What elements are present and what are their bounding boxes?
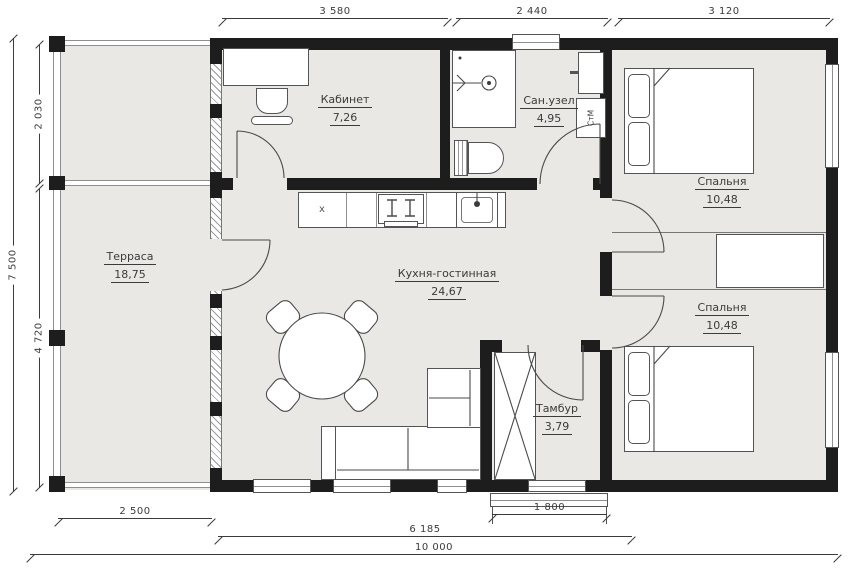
room-name: Терраса bbox=[104, 251, 157, 265]
wall-post bbox=[210, 38, 222, 64]
bathroom-door-opening bbox=[537, 178, 593, 190]
room-area: 4,95 bbox=[534, 113, 565, 127]
room-name: Кабинет bbox=[318, 94, 373, 108]
room-label-living: Кухня-гостинная 24,67 bbox=[397, 262, 497, 306]
room-label-bedroom2: Спальня 10,48 bbox=[677, 296, 767, 340]
room-name: Спальня bbox=[695, 302, 750, 316]
dimension-top-2: 2 440 bbox=[456, 6, 608, 22]
office-chair-back bbox=[251, 116, 293, 125]
kitchen-sink-basin bbox=[461, 197, 493, 223]
wall-post bbox=[210, 468, 222, 492]
dimension-bottom-total: 10 000 bbox=[30, 542, 838, 558]
bedroom1-door-opening bbox=[600, 198, 612, 252]
entrance-door bbox=[528, 480, 586, 492]
counter-divider bbox=[426, 193, 427, 227]
office-door-opening bbox=[233, 178, 287, 190]
floor-plan: СтМ x Терраса 18,75 Кабинет 7,26 Сан.узе… bbox=[0, 0, 862, 574]
dimension-value: 4 720 bbox=[34, 318, 45, 357]
dimension-value: 2 030 bbox=[34, 94, 45, 133]
dimension-value: 1 800 bbox=[492, 502, 607, 513]
room-area: 7,26 bbox=[330, 112, 361, 126]
window bbox=[253, 479, 311, 493]
office-desk bbox=[223, 48, 309, 86]
room-label-terrace: Терраса 18,75 bbox=[80, 245, 180, 289]
room-name: Кухня-гостинная bbox=[395, 268, 499, 282]
sofa-seat bbox=[335, 426, 481, 480]
window bbox=[512, 34, 560, 50]
toilet-tank bbox=[454, 140, 468, 176]
tambour-top-wall-left bbox=[480, 340, 502, 352]
wall-post bbox=[210, 294, 222, 308]
room-area: 24,67 bbox=[428, 286, 466, 300]
dimension-value: 10 000 bbox=[30, 542, 838, 553]
washbasin-faucet bbox=[570, 71, 579, 74]
terrace-bottom-edge bbox=[55, 482, 212, 488]
tambour-left-wall bbox=[480, 340, 492, 492]
wall-post bbox=[210, 172, 222, 198]
pillow bbox=[628, 74, 650, 118]
window bbox=[825, 64, 839, 168]
fridge-spot: x bbox=[300, 196, 344, 222]
window bbox=[825, 352, 839, 448]
toilet-bowl bbox=[468, 142, 504, 174]
room-area: 3,79 bbox=[542, 421, 573, 435]
room-label-tambour: Тамбур 3,79 bbox=[514, 397, 600, 441]
dimension-left-total: 7 500 bbox=[6, 38, 20, 492]
wall-post bbox=[210, 402, 222, 416]
room-label-office: Кабинет 7,26 bbox=[295, 88, 395, 132]
washbasin bbox=[578, 52, 604, 94]
dimension-value: 7 500 bbox=[8, 245, 19, 284]
room-name: Спальня bbox=[695, 176, 750, 190]
dimension-left-lower: 4 720 bbox=[32, 188, 46, 488]
counter-divider bbox=[346, 193, 347, 227]
room-name: Сан.узел bbox=[520, 95, 577, 109]
dimension-top-1: 3 580 bbox=[222, 6, 448, 22]
dimension-value: 2 440 bbox=[456, 6, 608, 17]
terrace-post bbox=[49, 36, 65, 52]
wall-post bbox=[210, 336, 222, 350]
office-bath-wall bbox=[440, 50, 450, 178]
counter-divider bbox=[376, 193, 377, 227]
dimension-value: 3 120 bbox=[618, 6, 830, 17]
office-chair-seat bbox=[256, 88, 288, 114]
stove-front-bar bbox=[384, 221, 418, 227]
stove bbox=[378, 194, 424, 224]
dimension-bottom-mid: 6 185 bbox=[218, 524, 632, 540]
terrace-post bbox=[49, 330, 65, 346]
room-area: 10,48 bbox=[703, 194, 741, 208]
dimension-bottom-terrace: 2 500 bbox=[58, 506, 212, 522]
dimension-bottom-door: 1 800 bbox=[492, 502, 607, 518]
terrace-divider bbox=[55, 180, 212, 186]
terrace-post bbox=[49, 176, 65, 190]
bedroom2-door-opening bbox=[600, 296, 612, 350]
sofa-corner bbox=[427, 368, 481, 428]
pillow bbox=[628, 400, 650, 444]
terrace-left-edge bbox=[53, 40, 61, 490]
pillow bbox=[628, 122, 650, 166]
terrace-top-edge bbox=[55, 40, 212, 46]
window bbox=[437, 479, 467, 493]
dimension-left-upper: 2 030 bbox=[32, 44, 46, 184]
room-area: 18,75 bbox=[111, 269, 149, 283]
dimension-value: 2 500 bbox=[58, 506, 212, 517]
room-area: 10,48 bbox=[703, 320, 741, 334]
terrace-post bbox=[49, 476, 65, 492]
room-label-bathroom: Сан.узел 4,95 bbox=[505, 90, 593, 132]
wall-post bbox=[210, 104, 222, 118]
wardrobe bbox=[716, 234, 824, 288]
dimension-value: 6 185 bbox=[218, 524, 632, 535]
pillow bbox=[628, 352, 650, 396]
window bbox=[333, 479, 391, 493]
dimension-top-3: 3 120 bbox=[618, 6, 830, 22]
room-label-bedroom1: Спальня 10,48 bbox=[677, 170, 767, 214]
fridge-spot-mark: x bbox=[319, 204, 325, 215]
terrace-door-opening bbox=[209, 239, 224, 291]
dimension-value: 3 580 bbox=[222, 6, 448, 17]
room-name: Тамбур bbox=[533, 403, 581, 417]
